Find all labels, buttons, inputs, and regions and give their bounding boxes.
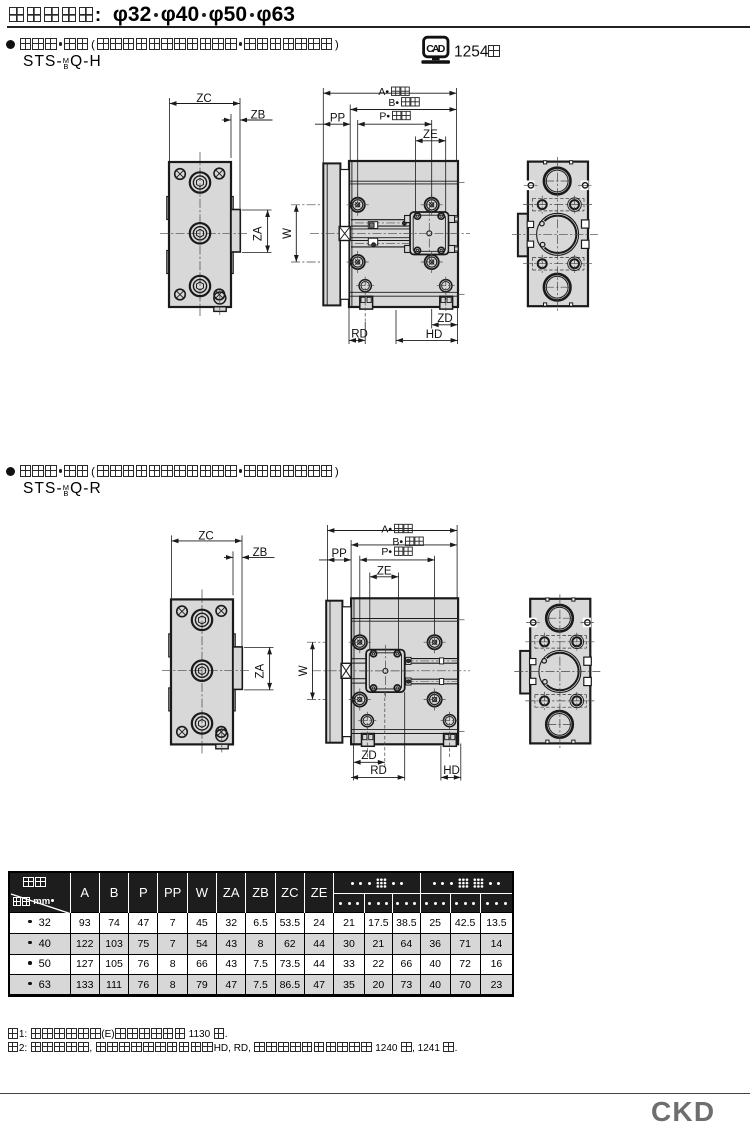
svg-text:P•: P• xyxy=(381,546,392,558)
svg-text:ZA: ZA xyxy=(252,226,264,241)
svg-text:W: W xyxy=(282,228,294,239)
svg-text:W: W xyxy=(298,665,310,676)
svg-text:ZD: ZD xyxy=(437,313,452,325)
svg-text:A•: A• xyxy=(381,524,392,536)
svg-text:1254: 1254 xyxy=(454,44,489,61)
svg-text:P•: P• xyxy=(379,111,390,123)
svg-text:HD: HD xyxy=(426,329,443,341)
svg-text:ZE: ZE xyxy=(377,565,392,577)
svg-text:CAD: CAD xyxy=(426,43,445,55)
svg-text:ZD: ZD xyxy=(361,750,376,762)
svg-text:ZE: ZE xyxy=(423,129,438,141)
svg-text:ZA: ZA xyxy=(254,664,266,679)
svg-text:B•: B• xyxy=(392,536,403,548)
svg-text:RD: RD xyxy=(370,765,387,777)
svg-text:B•: B• xyxy=(388,97,399,109)
svg-text:PP: PP xyxy=(330,113,346,125)
svg-text:HD: HD xyxy=(443,765,460,777)
